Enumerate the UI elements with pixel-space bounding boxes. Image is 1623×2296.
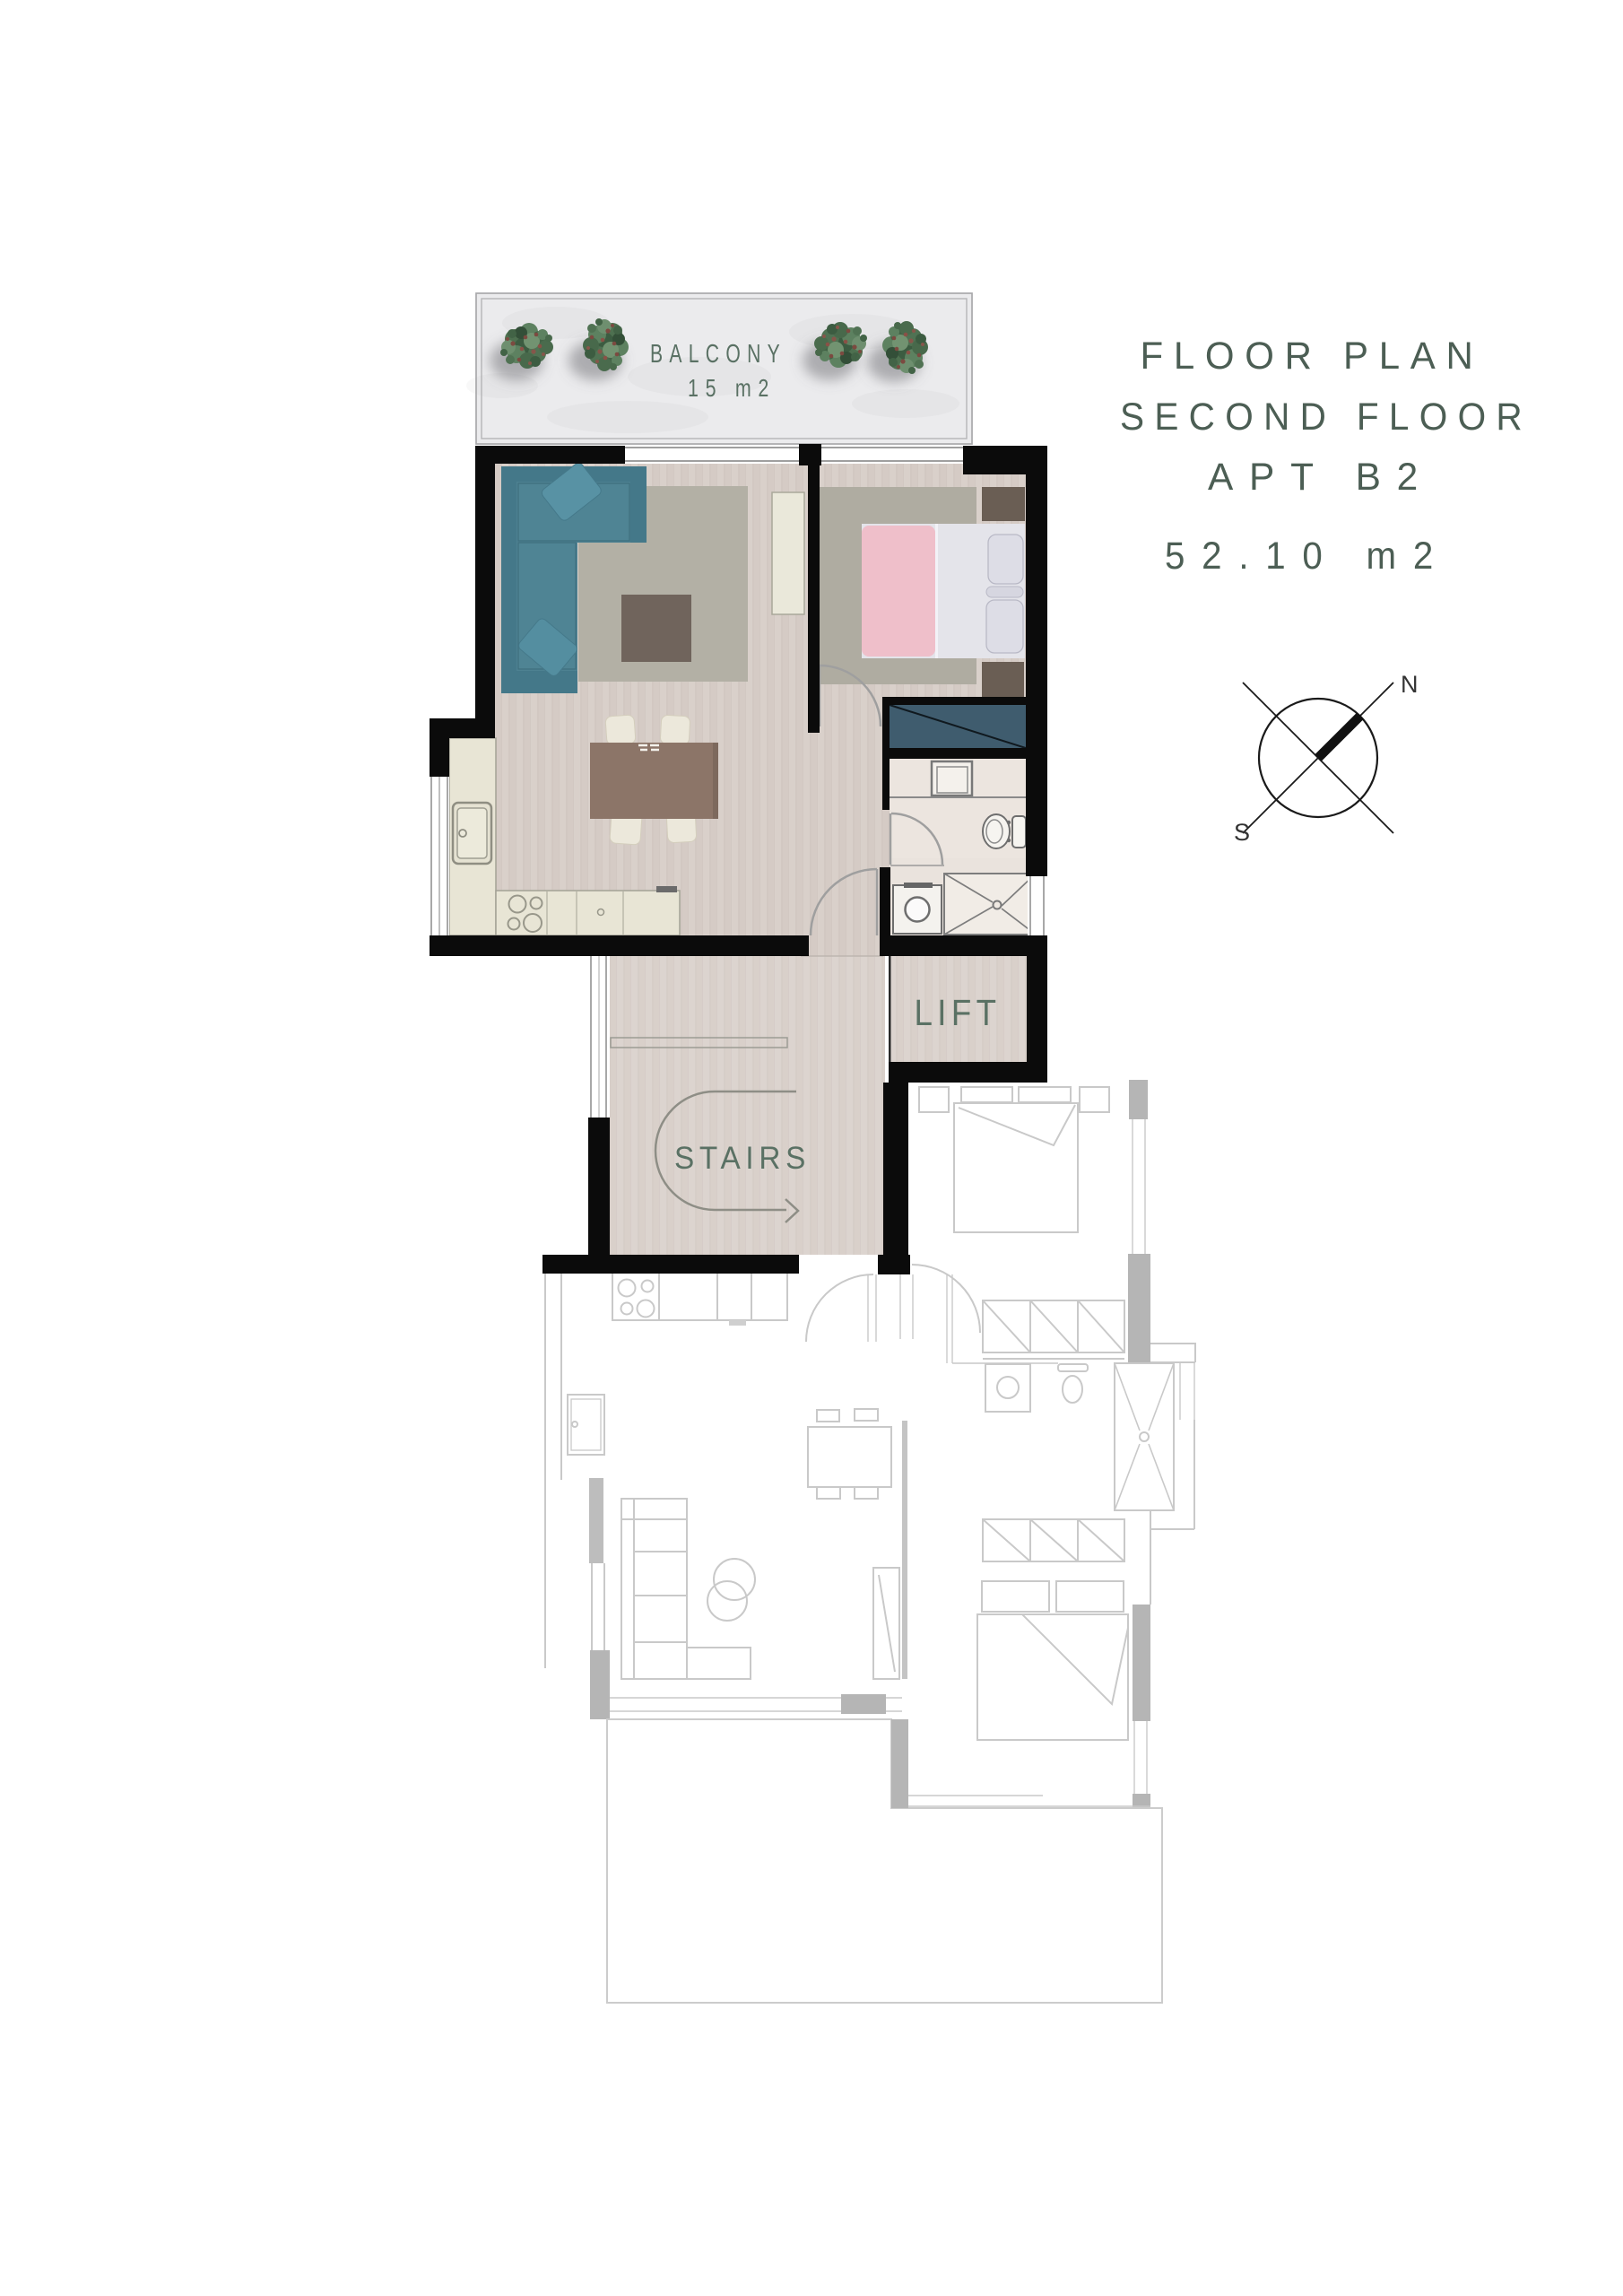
svg-text:LIFT: LIFT [915, 992, 1002, 1033]
svg-text:SECOND FLOOR: SECOND FLOOR [1120, 396, 1532, 439]
svg-text:S: S [1234, 819, 1250, 846]
svg-text:15 m2: 15 m2 [688, 374, 776, 402]
svg-text:APT B2: APT B2 [1208, 456, 1434, 499]
svg-text:52.10 m2: 52.10 m2 [1165, 535, 1450, 578]
svg-text:FLOOR PLAN: FLOOR PLAN [1141, 335, 1484, 378]
svg-text:N: N [1401, 671, 1419, 698]
svg-text:STAIRS: STAIRS [674, 1141, 811, 1176]
svg-text:BALCONY: BALCONY [650, 340, 786, 369]
